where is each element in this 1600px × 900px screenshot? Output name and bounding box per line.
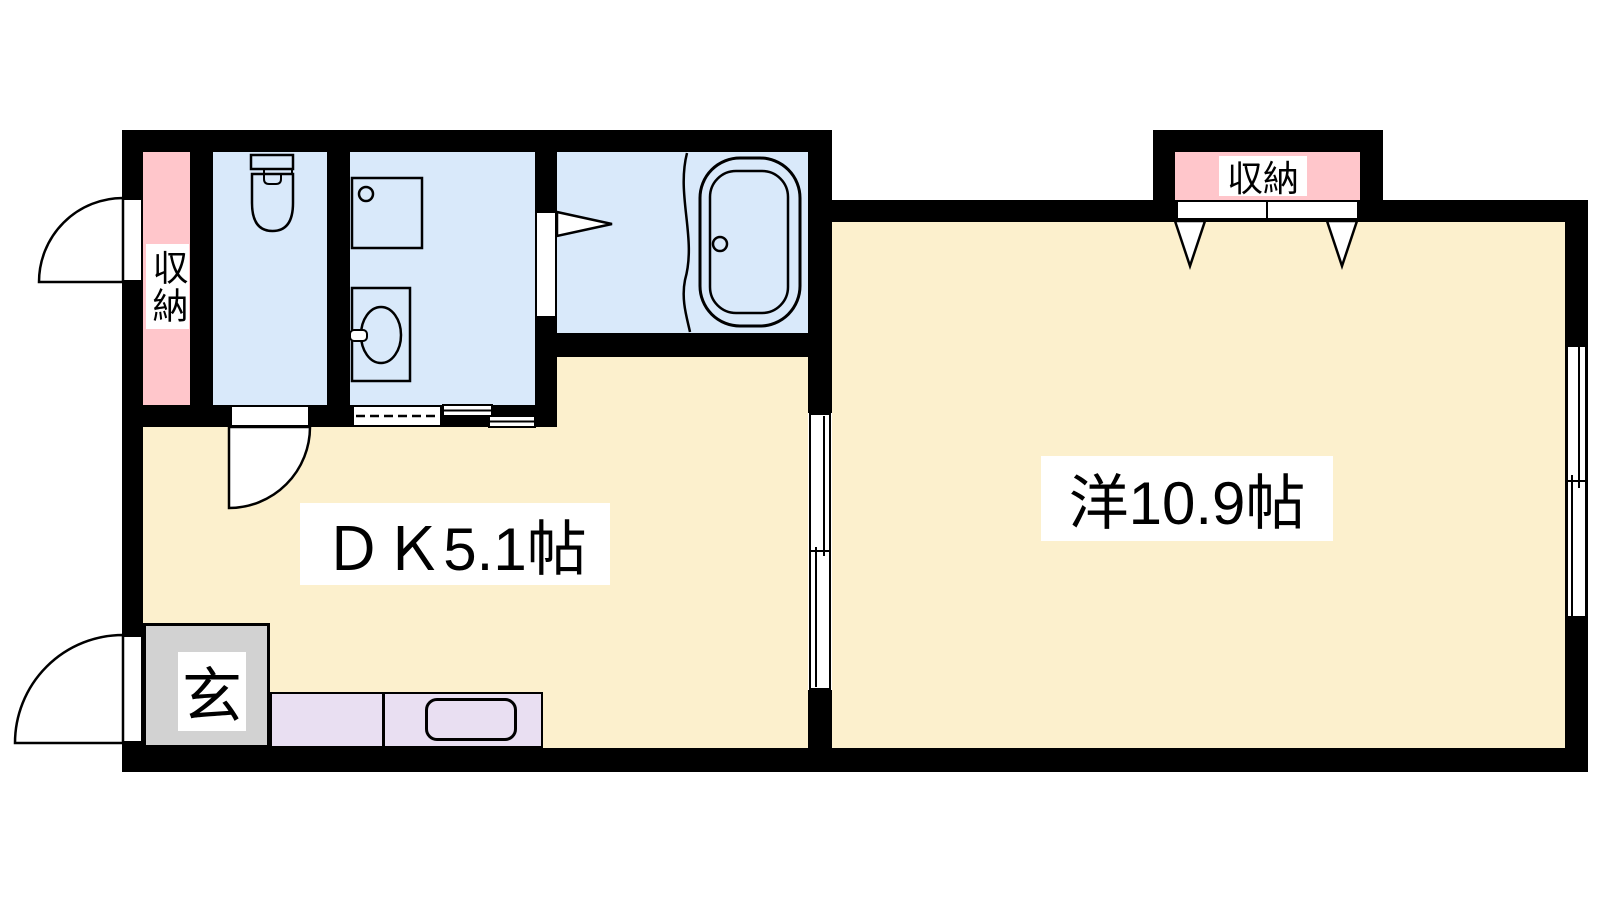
wall-bath-bottom [557, 333, 832, 357]
dk-room-label: ＤＫ5.1帖 [300, 503, 610, 585]
dk-room-label-text: ＤＫ5.1帖 [323, 501, 586, 588]
washroom-accordion-door [352, 405, 442, 427]
right-wall-window [1566, 345, 1587, 618]
storage-left-label: 収納 [146, 244, 189, 329]
floor-washroom [350, 152, 535, 405]
toilet-door-opening [230, 405, 310, 427]
closet-door-divider [1266, 202, 1268, 218]
western-room-label: 洋10.9帖 [1041, 456, 1333, 541]
storage-right-label: 収納 [1219, 156, 1307, 196]
exterior-storage-door-swing [39, 198, 123, 282]
wall-top-left-section [122, 130, 832, 152]
wall-wet-area-bottom [122, 405, 557, 427]
wall-dk-western-lower [808, 690, 832, 772]
entrance-label: 玄 [178, 652, 246, 731]
storage-right-label-text: 収納 [1227, 150, 1299, 202]
wall-bottom [122, 748, 1588, 772]
western-room-label-text: 洋10.9帖 [1069, 455, 1306, 542]
kitchen-counter-divider [382, 692, 385, 748]
entrance-door-swing [15, 635, 123, 743]
dk-western-sliding-door [809, 413, 831, 690]
closet-door-panels [1176, 200, 1359, 220]
exterior-storage-door-leaf [120, 198, 143, 282]
floor-toilet-room [213, 152, 327, 405]
wall-toilet-washroom-divider [327, 152, 350, 427]
storage-left-label-text: 収納 [142, 249, 194, 325]
kitchen-sink [425, 698, 517, 741]
floor-plan: ＤＫ5.1帖 洋10.9帖 玄 収納 収納 [0, 0, 1600, 900]
bathroom-door-opening [535, 211, 557, 318]
floor-dk-upper [557, 357, 808, 427]
entrance-label-text: 玄 [182, 648, 242, 735]
wall-dk-western-upper [808, 130, 832, 413]
entrance-door-leaf [120, 635, 143, 743]
floor-bathroom [557, 152, 808, 333]
